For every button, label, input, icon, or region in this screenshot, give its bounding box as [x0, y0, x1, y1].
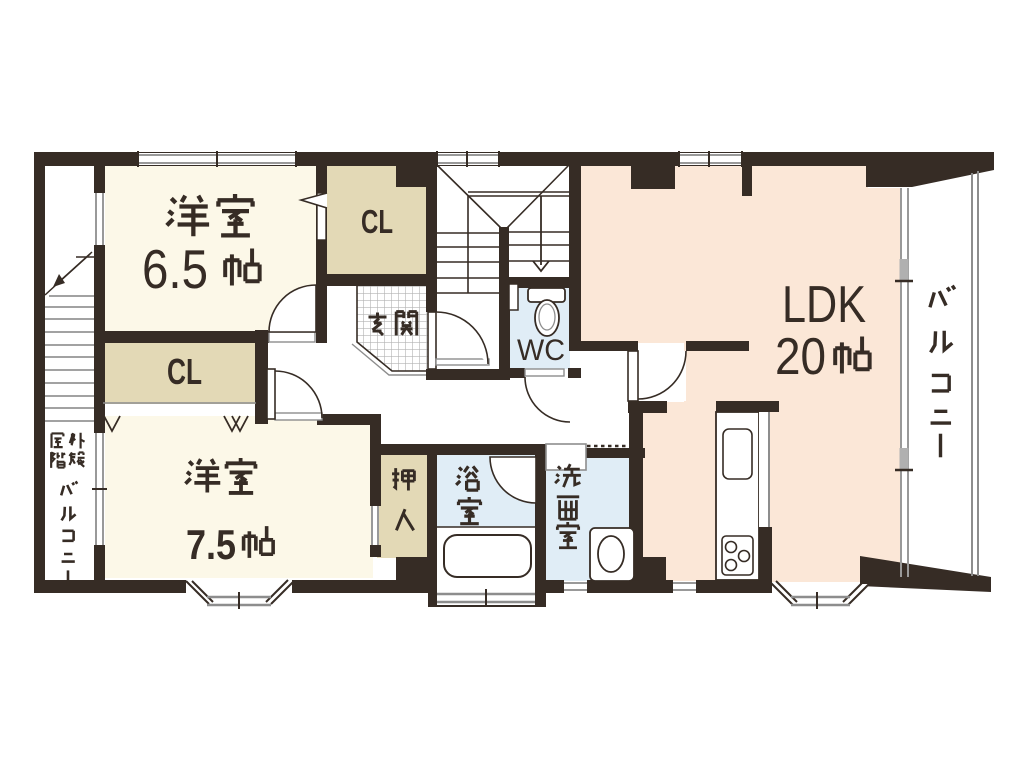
svg-text:CL: CL	[361, 203, 393, 240]
svg-text:WC: WC	[517, 334, 565, 367]
svg-text:7.5: 7.5	[186, 521, 236, 568]
svg-text:20: 20	[775, 328, 826, 386]
svg-text:CL: CL	[167, 351, 202, 392]
svg-text:LDK: LDK	[782, 276, 866, 334]
svg-text:6.5: 6.5	[142, 238, 208, 300]
